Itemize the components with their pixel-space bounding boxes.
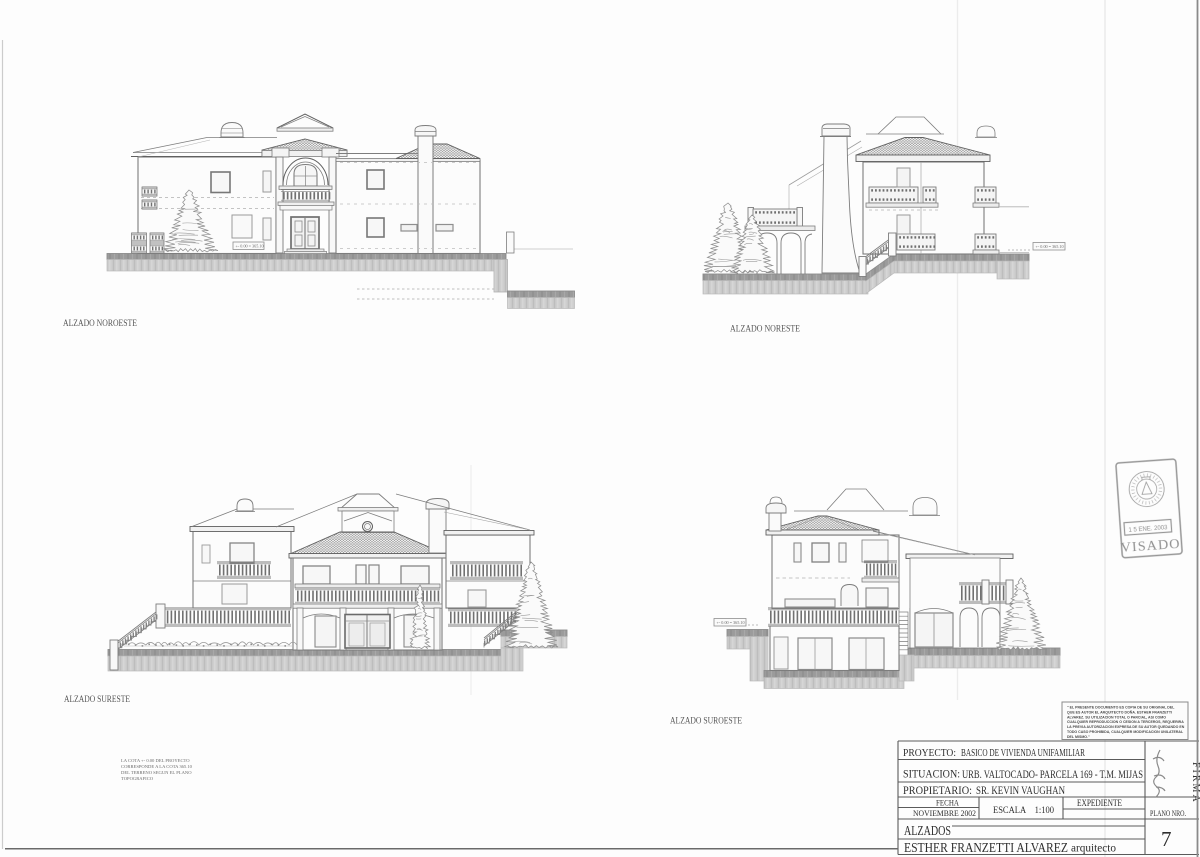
svg-text:7: 7 <box>1161 827 1172 851</box>
svg-text:SITUACION:: SITUACION: <box>903 767 960 781</box>
svg-text:PROYECTO:: PROYECTO: <box>903 747 956 759</box>
svg-text:ESCALA 1:100: ESCALA 1:100 <box>993 806 1054 816</box>
svg-text:EXPEDIENTE: EXPEDIENTE <box>1077 798 1122 808</box>
svg-text:ESTHER FRANZETTI ALVAREZ: ESTHER FRANZETTI ALVAREZ <box>904 841 1068 856</box>
svg-text:LA PREVIA AUTORIZACION EXPRESA: LA PREVIA AUTORIZACION EXPRESA DE SU AUT… <box>1067 725 1185 729</box>
svg-text:ALVAREZ. SU UTILIZACION TOTAL: ALVAREZ. SU UTILIZACION TOTAL O PARCIAL,… <box>1067 715 1166 719</box>
svg-text:QUE ES AUTOR EL ARQUITECTO DOÑ: QUE ES AUTOR EL ARQUITECTO DOÑA. ESTHER … <box>1067 709 1172 714</box>
svg-text:SR. KEVIN VAUGHAN: SR. KEVIN VAUGHAN <box>976 785 1066 797</box>
svg-text:TODO CASO PROHIBIDA, CUALQUIER: TODO CASO PROHIBIDA, CUALQUIER MODIFICAC… <box>1067 730 1184 734</box>
svg-text:+- 0.00 = 365.10: +- 0.00 = 365.10 <box>717 620 745 625</box>
svg-text:ALZADO NOROESTE: ALZADO NOROESTE <box>63 319 137 329</box>
svg-text:DEL TERRENO SEGUN EL PLANO: DEL TERRENO SEGUN EL PLANO <box>121 770 192 775</box>
svg-text:ALZADO SURESTE: ALZADO SURESTE <box>64 695 130 705</box>
svg-text:+- 0.00 = 365.10: +- 0.00 = 365.10 <box>236 244 264 249</box>
svg-text:CORRESPONDE A LA COTA 365.10: CORRESPONDE A LA COTA 365.10 <box>121 764 193 769</box>
svg-text:ALZADOS: ALZADOS <box>904 823 951 838</box>
svg-text:arquitecto: arquitecto <box>1071 841 1116 855</box>
svg-text:ALZADO NORESTE: ALZADO NORESTE <box>730 325 800 335</box>
svg-text:+- 0.00 = 365.10: +- 0.00 = 365.10 <box>1036 244 1064 249</box>
svg-text:PLANO NRO.: PLANO NRO. <box>1150 808 1186 818</box>
svg-text:PROPIETARIO:: PROPIETARIO: <box>903 783 972 797</box>
svg-text:FIRMA: FIRMA <box>1190 762 1200 804</box>
svg-text:TOPOGRAFICO: TOPOGRAFICO <box>121 776 154 781</box>
svg-text:CUALQUIER REPRODUCCION O CESIO: CUALQUIER REPRODUCCION O CESION A TERCER… <box>1067 720 1184 724</box>
svg-text:BASICO DE VIVIENDA UNIFAMIL: BASICO DE VIVIENDA UNIFAMILIAR <box>961 748 1085 759</box>
svg-text:FECHA: FECHA <box>936 799 959 808</box>
svg-text:ALZADO SUROESTE: ALZADO SUROESTE <box>670 717 742 727</box>
svg-text:NOVIEMBRE 2002: NOVIEMBRE 2002 <box>913 808 976 818</box>
svg-text:" EL PRESENTE DOCUMENTO ES COP: " EL PRESENTE DOCUMENTO ES COPIA DE SU O… <box>1067 706 1175 710</box>
svg-text:URB. VALTOCADO- PARCELA 169 -: URB. VALTOCADO- PARCELA 169 - T.M. MIJAS <box>962 767 1143 781</box>
svg-text:DEL MISMO.": DEL MISMO." <box>1067 735 1090 739</box>
svg-text:LA COTA +- 0.00 DEL PROYECTO: LA COTA +- 0.00 DEL PROYECTO <box>121 758 190 763</box>
